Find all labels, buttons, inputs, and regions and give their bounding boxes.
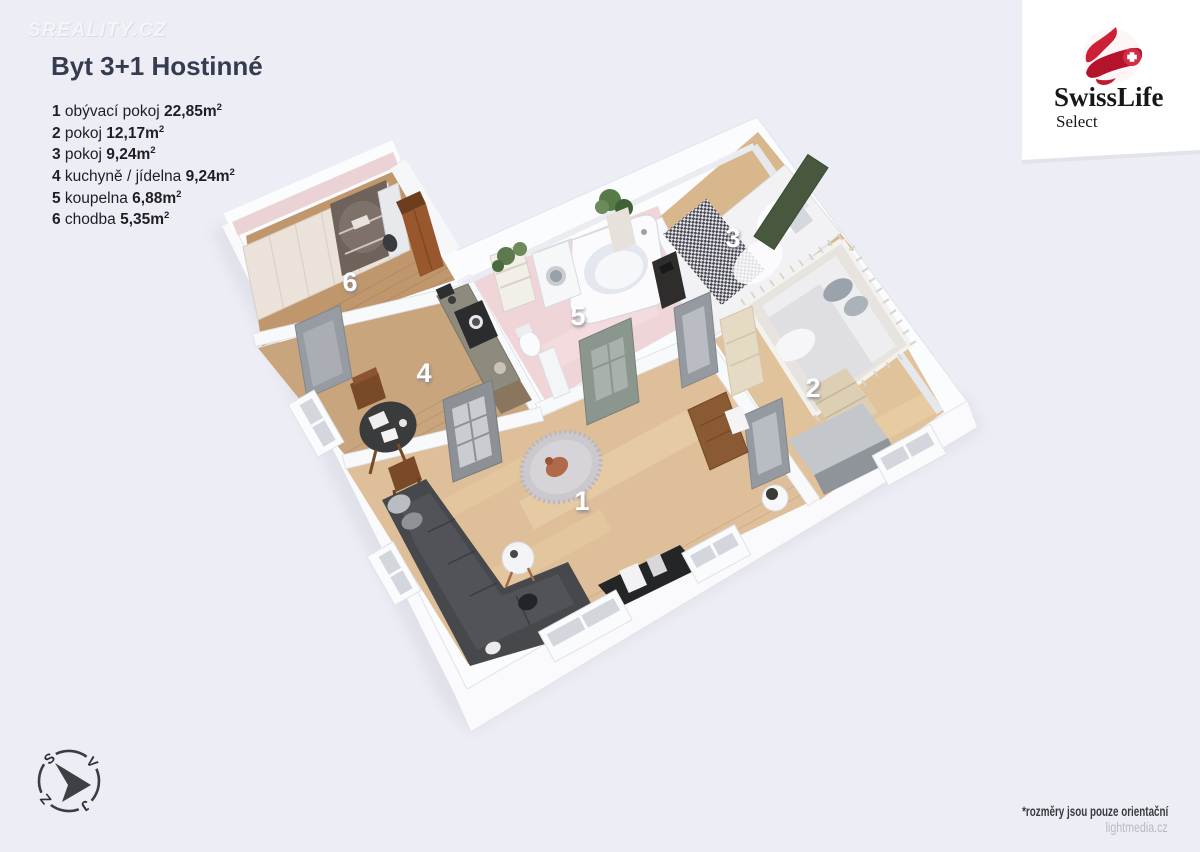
svg-text:6: 6: [342, 267, 357, 297]
svg-text:5: 5: [570, 301, 585, 331]
svg-text:Select: Select: [1056, 112, 1098, 131]
svg-text:1: 1: [574, 486, 589, 516]
svg-text:SwissLife: SwissLife: [1054, 82, 1164, 112]
svg-text:4: 4: [416, 358, 431, 388]
svg-text:2: 2: [805, 373, 820, 403]
svg-text:3: 3: [725, 223, 740, 253]
